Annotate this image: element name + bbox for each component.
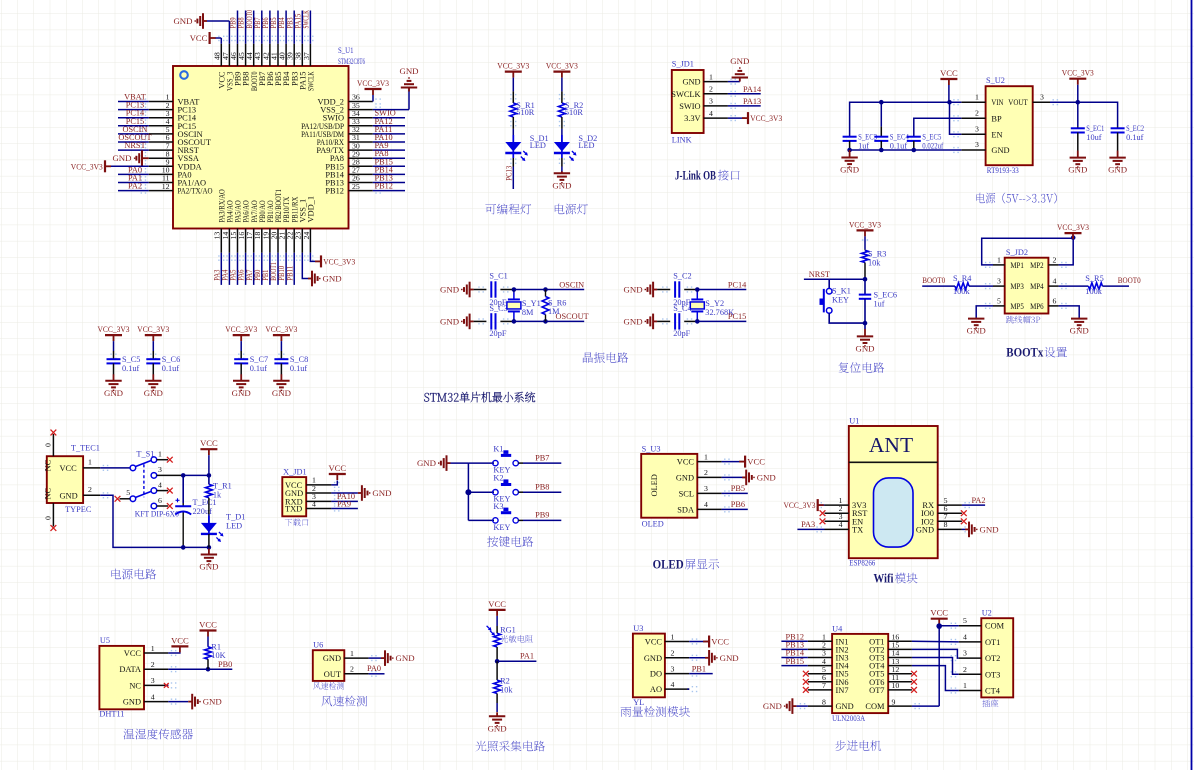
- svg-text:SWCLK: SWCLK: [302, 10, 311, 29]
- svg-text:GND: GND: [199, 562, 218, 572]
- svg-text:0.1uf: 0.1uf: [290, 364, 308, 373]
- svg-text:GND: GND: [1108, 165, 1127, 175]
- svg-text:NRST: NRST: [124, 141, 145, 150]
- svg-text:GND: GND: [1068, 165, 1087, 175]
- svg-text:GND: GND: [991, 146, 1009, 155]
- svg-text:CT4: CT4: [985, 687, 1001, 696]
- svg-text:GND: GND: [624, 316, 643, 326]
- svg-text:GND: GND: [855, 343, 874, 353]
- svg-text:VCC_3V3: VCC_3V3: [849, 219, 881, 229]
- svg-text:S_R5: S_R5: [1085, 274, 1103, 283]
- svg-text:0.1uf: 0.1uf: [250, 364, 268, 373]
- svg-text:MP2: MP2: [1030, 261, 1044, 270]
- svg-text:4: 4: [312, 499, 316, 508]
- svg-text:37: 37: [302, 52, 311, 60]
- svg-text:1: 1: [350, 649, 354, 658]
- svg-text:OLED: OLED: [653, 558, 684, 572]
- svg-text:VOUT: VOUT: [1008, 98, 1028, 107]
- svg-text:TX: TX: [852, 525, 863, 534]
- svg-text:MP1: MP1: [1010, 261, 1024, 270]
- svg-text:VCC_3V3: VCC_3V3: [546, 61, 578, 71]
- svg-text:GND: GND: [60, 492, 78, 501]
- svg-text:T_D1: T_D1: [226, 513, 245, 522]
- svg-text:0.1uf: 0.1uf: [1126, 133, 1144, 142]
- svg-text:1: 1: [704, 452, 708, 461]
- svg-text:1: 1: [88, 458, 92, 467]
- svg-text:S_EC4: S_EC4: [890, 133, 910, 142]
- svg-text:PB0: PB0: [218, 660, 232, 669]
- svg-text:2: 2: [963, 665, 967, 674]
- svg-text:PA2: PA2: [128, 182, 142, 191]
- svg-text:10: 10: [892, 681, 900, 690]
- svg-text:GND: GND: [396, 653, 415, 663]
- svg-text:10k: 10k: [868, 259, 881, 268]
- svg-text:1uf: 1uf: [858, 142, 869, 151]
- svg-text:0: 0: [44, 516, 53, 520]
- svg-text:S_EC5: S_EC5: [922, 133, 941, 142]
- svg-text:VCC_3V3: VCC_3V3: [225, 324, 257, 334]
- svg-text:3: 3: [963, 649, 967, 658]
- svg-text:GND: GND: [123, 698, 141, 707]
- svg-text:7: 7: [822, 681, 826, 690]
- svg-text:S_C1: S_C1: [489, 272, 507, 281]
- svg-text:GND: GND: [440, 316, 459, 326]
- svg-text:OT1: OT1: [985, 638, 1000, 647]
- svg-text:1uf: 1uf: [874, 300, 885, 309]
- svg-text:PB12: PB12: [375, 182, 393, 191]
- svg-text:VCC: VCC: [488, 599, 506, 609]
- svg-text:GND: GND: [676, 473, 694, 482]
- svg-text:1: 1: [963, 681, 967, 690]
- svg-text:1: 1: [671, 632, 675, 641]
- svg-text:VCC_3V3: VCC_3V3: [98, 324, 130, 334]
- svg-text:S_C2: S_C2: [673, 272, 691, 281]
- svg-text:S_R3: S_R3: [868, 250, 886, 259]
- svg-text:4: 4: [158, 480, 162, 489]
- svg-text:GND: GND: [763, 701, 782, 711]
- svg-text:COM: COM: [985, 622, 1005, 631]
- svg-text:10K: 10K: [211, 651, 225, 660]
- svg-text:VCC: VCC: [328, 463, 346, 473]
- svg-text:3: 3: [709, 97, 713, 106]
- svg-text:0.1uf: 0.1uf: [122, 364, 140, 373]
- svg-text:VCC_3V3: VCC_3V3: [784, 500, 816, 510]
- svg-text:0.1uf: 0.1uf: [162, 364, 180, 373]
- svg-text:Wifi: Wifi: [874, 572, 895, 586]
- svg-text:3: 3: [151, 676, 155, 685]
- svg-text:1M: 1M: [548, 307, 560, 316]
- svg-text:3.3V: 3.3V: [684, 114, 701, 123]
- svg-text:VIN: VIN: [991, 98, 1003, 107]
- svg-text:5: 5: [997, 296, 1001, 305]
- svg-text:GND: GND: [323, 654, 341, 663]
- svg-text:6: 6: [1053, 296, 1057, 305]
- svg-text:U6: U6: [313, 641, 323, 650]
- svg-text:PA1: PA1: [520, 652, 534, 661]
- svg-text:PB8: PB8: [535, 482, 549, 491]
- svg-text:GND: GND: [488, 723, 507, 733]
- svg-text:3: 3: [1040, 92, 1044, 101]
- svg-text:GND: GND: [232, 388, 251, 398]
- svg-text:GND: GND: [1070, 326, 1089, 336]
- svg-text:ULN2003A: ULN2003A: [832, 714, 865, 723]
- svg-text:S_Y1: S_Y1: [522, 299, 541, 308]
- svg-text:GND: GND: [757, 472, 776, 482]
- svg-text:VCC_3V3: VCC_3V3: [265, 324, 297, 334]
- svg-text:GND: GND: [552, 180, 571, 190]
- svg-text:9: 9: [892, 697, 896, 706]
- svg-text:GND: GND: [323, 274, 342, 284]
- svg-text:GND: GND: [840, 165, 859, 175]
- svg-text:OLED: OLED: [642, 520, 664, 529]
- svg-text:12: 12: [162, 182, 170, 191]
- svg-text:R2: R2: [500, 677, 510, 686]
- svg-text:PA13: PA13: [743, 97, 761, 106]
- svg-text:VCC_3V3: VCC_3V3: [357, 78, 389, 88]
- svg-text:0.1uf: 0.1uf: [890, 142, 908, 151]
- svg-text:U5: U5: [100, 636, 110, 645]
- svg-text:LED: LED: [578, 141, 594, 150]
- svg-text:0.022uf: 0.022uf: [922, 142, 943, 151]
- svg-text:1: 1: [158, 450, 162, 459]
- svg-text:GND: GND: [144, 388, 163, 398]
- svg-text:NRST: NRST: [809, 270, 830, 279]
- svg-text:ESP8266: ESP8266: [849, 559, 875, 568]
- svg-text:LINK: LINK: [672, 136, 692, 145]
- svg-text:MP5: MP5: [1010, 302, 1024, 311]
- svg-text:GND: GND: [644, 654, 662, 663]
- svg-text:VCC_3V3: VCC_3V3: [1062, 68, 1094, 78]
- svg-text:DHT11: DHT11: [99, 710, 124, 719]
- svg-text:VCC_3V3: VCC_3V3: [1057, 222, 1089, 232]
- svg-text:S_U2: S_U2: [986, 76, 1005, 85]
- svg-text:S_R4: S_R4: [953, 274, 972, 283]
- svg-text:2: 2: [1053, 255, 1057, 264]
- svg-text:1: 1: [709, 72, 713, 81]
- svg-text:MP3: MP3: [1010, 282, 1024, 291]
- svg-text:2: 2: [151, 660, 155, 669]
- svg-text:PB7: PB7: [535, 453, 549, 462]
- svg-text:OT7: OT7: [869, 686, 884, 695]
- svg-text:VCC_3V3: VCC_3V3: [137, 324, 169, 334]
- svg-text:2: 2: [975, 109, 979, 118]
- svg-text:VDD_1: VDD_1: [307, 196, 316, 223]
- svg-text:S_C7: S_C7: [250, 355, 268, 364]
- svg-text:GND: GND: [272, 388, 291, 398]
- svg-text:PA2/TX/AO: PA2/TX/AO: [178, 187, 213, 196]
- svg-text:VCC: VCC: [190, 33, 208, 43]
- svg-text:0: 0: [44, 443, 53, 447]
- svg-text:5: 5: [963, 616, 967, 625]
- svg-text:S_EC1: S_EC1: [1086, 124, 1104, 133]
- svg-text:S_EC3: S_EC3: [858, 133, 877, 142]
- svg-text:GND: GND: [967, 326, 986, 336]
- svg-text:X_JD1: X_JD1: [283, 467, 307, 476]
- svg-text:U4: U4: [832, 625, 843, 634]
- svg-text:STM32C8T6: STM32C8T6: [338, 57, 365, 66]
- svg-text:U3: U3: [633, 624, 643, 633]
- svg-text:2: 2: [709, 85, 713, 94]
- svg-text:PA9: PA9: [337, 499, 351, 508]
- svg-text:S_EC2: S_EC2: [1126, 124, 1144, 133]
- svg-text:PB6: PB6: [731, 500, 745, 509]
- svg-text:S_JD1: S_JD1: [672, 60, 694, 69]
- svg-text:PA0: PA0: [367, 664, 381, 673]
- svg-text:PB15: PB15: [786, 657, 804, 666]
- svg-text:LED: LED: [226, 522, 242, 531]
- svg-text:GND: GND: [730, 56, 749, 66]
- svg-text:3: 3: [158, 465, 162, 474]
- svg-text:VCC: VCC: [940, 68, 958, 78]
- svg-text:U2: U2: [982, 609, 992, 618]
- svg-text:GND: GND: [980, 524, 999, 534]
- svg-text:GND: GND: [104, 388, 123, 398]
- svg-text:IN7: IN7: [836, 686, 849, 695]
- svg-text:MP6: MP6: [1030, 302, 1044, 311]
- svg-text:1k: 1k: [213, 491, 222, 500]
- svg-text:AO: AO: [650, 685, 662, 694]
- svg-text:GND: GND: [836, 702, 854, 711]
- svg-text:8M: 8M: [522, 308, 534, 317]
- svg-text:6: 6: [158, 496, 162, 505]
- svg-text:4: 4: [671, 680, 675, 689]
- svg-text:NC: NC: [44, 487, 53, 499]
- svg-text:4: 4: [1053, 277, 1057, 286]
- svg-text:BP: BP: [991, 114, 1002, 123]
- svg-text:25: 25: [352, 182, 360, 191]
- svg-text:NC: NC: [44, 459, 53, 471]
- svg-text:VCC_3V3: VCC_3V3: [323, 256, 355, 266]
- svg-text:OLED: OLED: [650, 474, 659, 496]
- svg-text:10k: 10k: [500, 686, 513, 695]
- svg-text:PC14: PC14: [728, 280, 747, 289]
- svg-text:GND: GND: [372, 488, 391, 498]
- svg-text:K1: K1: [493, 445, 503, 454]
- svg-text:510R: 510R: [565, 108, 583, 117]
- svg-text:LED: LED: [530, 141, 546, 150]
- svg-text:GND: GND: [916, 525, 934, 534]
- svg-text:4: 4: [151, 692, 155, 701]
- svg-text:1: 1: [997, 255, 1001, 264]
- svg-text:RT9193-33: RT9193-33: [987, 166, 1019, 175]
- svg-text:3: 3: [671, 664, 675, 673]
- svg-text:VCC_3V3: VCC_3V3: [71, 161, 103, 171]
- svg-text:OT2: OT2: [985, 654, 1000, 663]
- svg-text:3: 3: [704, 484, 708, 493]
- svg-text:VCC: VCC: [677, 458, 695, 467]
- svg-text:K2: K2: [493, 474, 503, 483]
- svg-text:100k: 100k: [953, 287, 970, 296]
- svg-text:S_C8: S_C8: [290, 355, 308, 364]
- svg-text:20pF: 20pF: [489, 329, 506, 338]
- svg-text:5: 5: [126, 488, 130, 497]
- svg-text:SCL: SCL: [679, 489, 694, 498]
- svg-text:GND: GND: [720, 653, 739, 663]
- svg-text:GND: GND: [682, 78, 700, 87]
- svg-text:KFT DIP-6X6: KFT DIP-6X6: [135, 510, 179, 519]
- svg-text:BOOTx: BOOTx: [1006, 346, 1044, 360]
- svg-text:3: 3: [975, 125, 979, 134]
- svg-text:PC13: PC13: [504, 166, 513, 181]
- svg-text:PB12: PB12: [325, 187, 344, 196]
- svg-text:1: 1: [151, 644, 155, 653]
- svg-text:VCC: VCC: [645, 638, 663, 647]
- svg-text:510R: 510R: [516, 108, 534, 117]
- svg-text:GND: GND: [440, 285, 459, 295]
- svg-text:BOOT0: BOOT0: [1118, 276, 1141, 285]
- svg-text:S_C3: S_C3: [489, 304, 507, 313]
- svg-text:YL: YL: [633, 698, 644, 707]
- svg-text:MP4: MP4: [1030, 282, 1044, 291]
- svg-text:SWCLK: SWCLK: [307, 72, 316, 92]
- svg-text:VCC: VCC: [747, 457, 765, 467]
- svg-text:PB5: PB5: [731, 484, 745, 493]
- svg-text:PB11: PB11: [285, 266, 294, 281]
- svg-text:10uf: 10uf: [1086, 133, 1101, 142]
- svg-text:OT3: OT3: [985, 670, 1000, 679]
- svg-text:4: 4: [963, 632, 967, 641]
- svg-text:J-Link OB: J-Link OB: [675, 169, 716, 183]
- svg-text:EN: EN: [991, 130, 1002, 139]
- svg-text:DO: DO: [650, 670, 662, 679]
- svg-text:S_K1: S_K1: [832, 287, 851, 296]
- svg-text:2: 2: [671, 649, 675, 658]
- svg-text:BOOT0: BOOT0: [922, 276, 945, 285]
- svg-text:VCC_3V3: VCC_3V3: [750, 113, 782, 123]
- svg-text:GND: GND: [173, 16, 192, 26]
- svg-text:4: 4: [704, 500, 708, 509]
- svg-text:K3: K3: [493, 502, 503, 511]
- svg-text:VCC: VCC: [171, 635, 189, 645]
- svg-text:4: 4: [709, 109, 713, 118]
- svg-text:S_U1: S_U1: [338, 46, 354, 55]
- svg-text:PB9: PB9: [535, 511, 549, 520]
- svg-text:8: 8: [822, 697, 826, 706]
- svg-text:VCC_3V3: VCC_3V3: [497, 61, 529, 71]
- svg-text:OUT: OUT: [324, 670, 341, 679]
- svg-text:GND: GND: [624, 285, 643, 295]
- svg-text:2: 2: [88, 485, 92, 494]
- svg-text:3: 3: [997, 277, 1001, 286]
- svg-text:S_JD2: S_JD2: [1006, 248, 1028, 257]
- svg-text:3: 3: [975, 140, 979, 149]
- svg-text:PA14: PA14: [743, 85, 762, 94]
- svg-text:2: 2: [704, 468, 708, 477]
- svg-text:GND: GND: [417, 458, 436, 468]
- svg-text:SWCLK: SWCLK: [671, 90, 700, 99]
- svg-text:T_R1: T_R1: [213, 482, 232, 491]
- svg-text:RG1: RG1: [500, 626, 516, 635]
- svg-text:S_C5: S_C5: [122, 355, 140, 364]
- svg-text:DATA: DATA: [119, 665, 141, 674]
- svg-text:20pF: 20pF: [673, 329, 690, 338]
- svg-text:VCC: VCC: [199, 620, 217, 630]
- svg-text:COM: COM: [865, 702, 885, 711]
- svg-text:TYPEC: TYPEC: [65, 505, 92, 514]
- svg-text:2: 2: [350, 665, 354, 674]
- svg-text:T_TEC1: T_TEC1: [71, 444, 100, 453]
- svg-text:S_U3: S_U3: [642, 445, 661, 454]
- svg-text:U1: U1: [849, 417, 859, 426]
- svg-text:NC: NC: [129, 681, 141, 690]
- svg-text:SDA: SDA: [677, 505, 694, 514]
- svg-text:VCC: VCC: [200, 438, 218, 448]
- svg-text:SWIO: SWIO: [679, 102, 700, 111]
- svg-text:VCC: VCC: [930, 608, 948, 618]
- svg-text:PC15: PC15: [728, 312, 746, 321]
- svg-text:PB1: PB1: [692, 664, 706, 673]
- svg-text:PA3: PA3: [801, 520, 815, 529]
- svg-text:100k: 100k: [1085, 287, 1102, 296]
- svg-text:GND: GND: [399, 66, 418, 76]
- svg-text:KEY: KEY: [493, 523, 510, 532]
- svg-text:24: 24: [302, 232, 311, 240]
- svg-text:KEY: KEY: [832, 295, 849, 304]
- svg-text:VCC: VCC: [60, 464, 78, 473]
- svg-text:OSCOUT: OSCOUT: [555, 312, 588, 321]
- svg-text:TXD: TXD: [285, 505, 302, 514]
- svg-text:S_Y2: S_Y2: [705, 299, 724, 308]
- svg-text:GND: GND: [112, 153, 131, 163]
- svg-text:OSCIN: OSCIN: [559, 280, 584, 289]
- svg-text:ANT: ANT: [869, 433, 913, 457]
- svg-text:S_C6: S_C6: [162, 355, 180, 364]
- svg-text:GND: GND: [203, 697, 222, 707]
- svg-text:4: 4: [839, 520, 843, 529]
- svg-text:VCC: VCC: [711, 637, 729, 647]
- svg-text:S_EC6: S_EC6: [874, 291, 898, 300]
- svg-text:VCC: VCC: [124, 649, 142, 658]
- svg-text:1: 1: [975, 92, 979, 101]
- svg-text:PA2: PA2: [972, 496, 986, 505]
- svg-text:8: 8: [944, 520, 948, 529]
